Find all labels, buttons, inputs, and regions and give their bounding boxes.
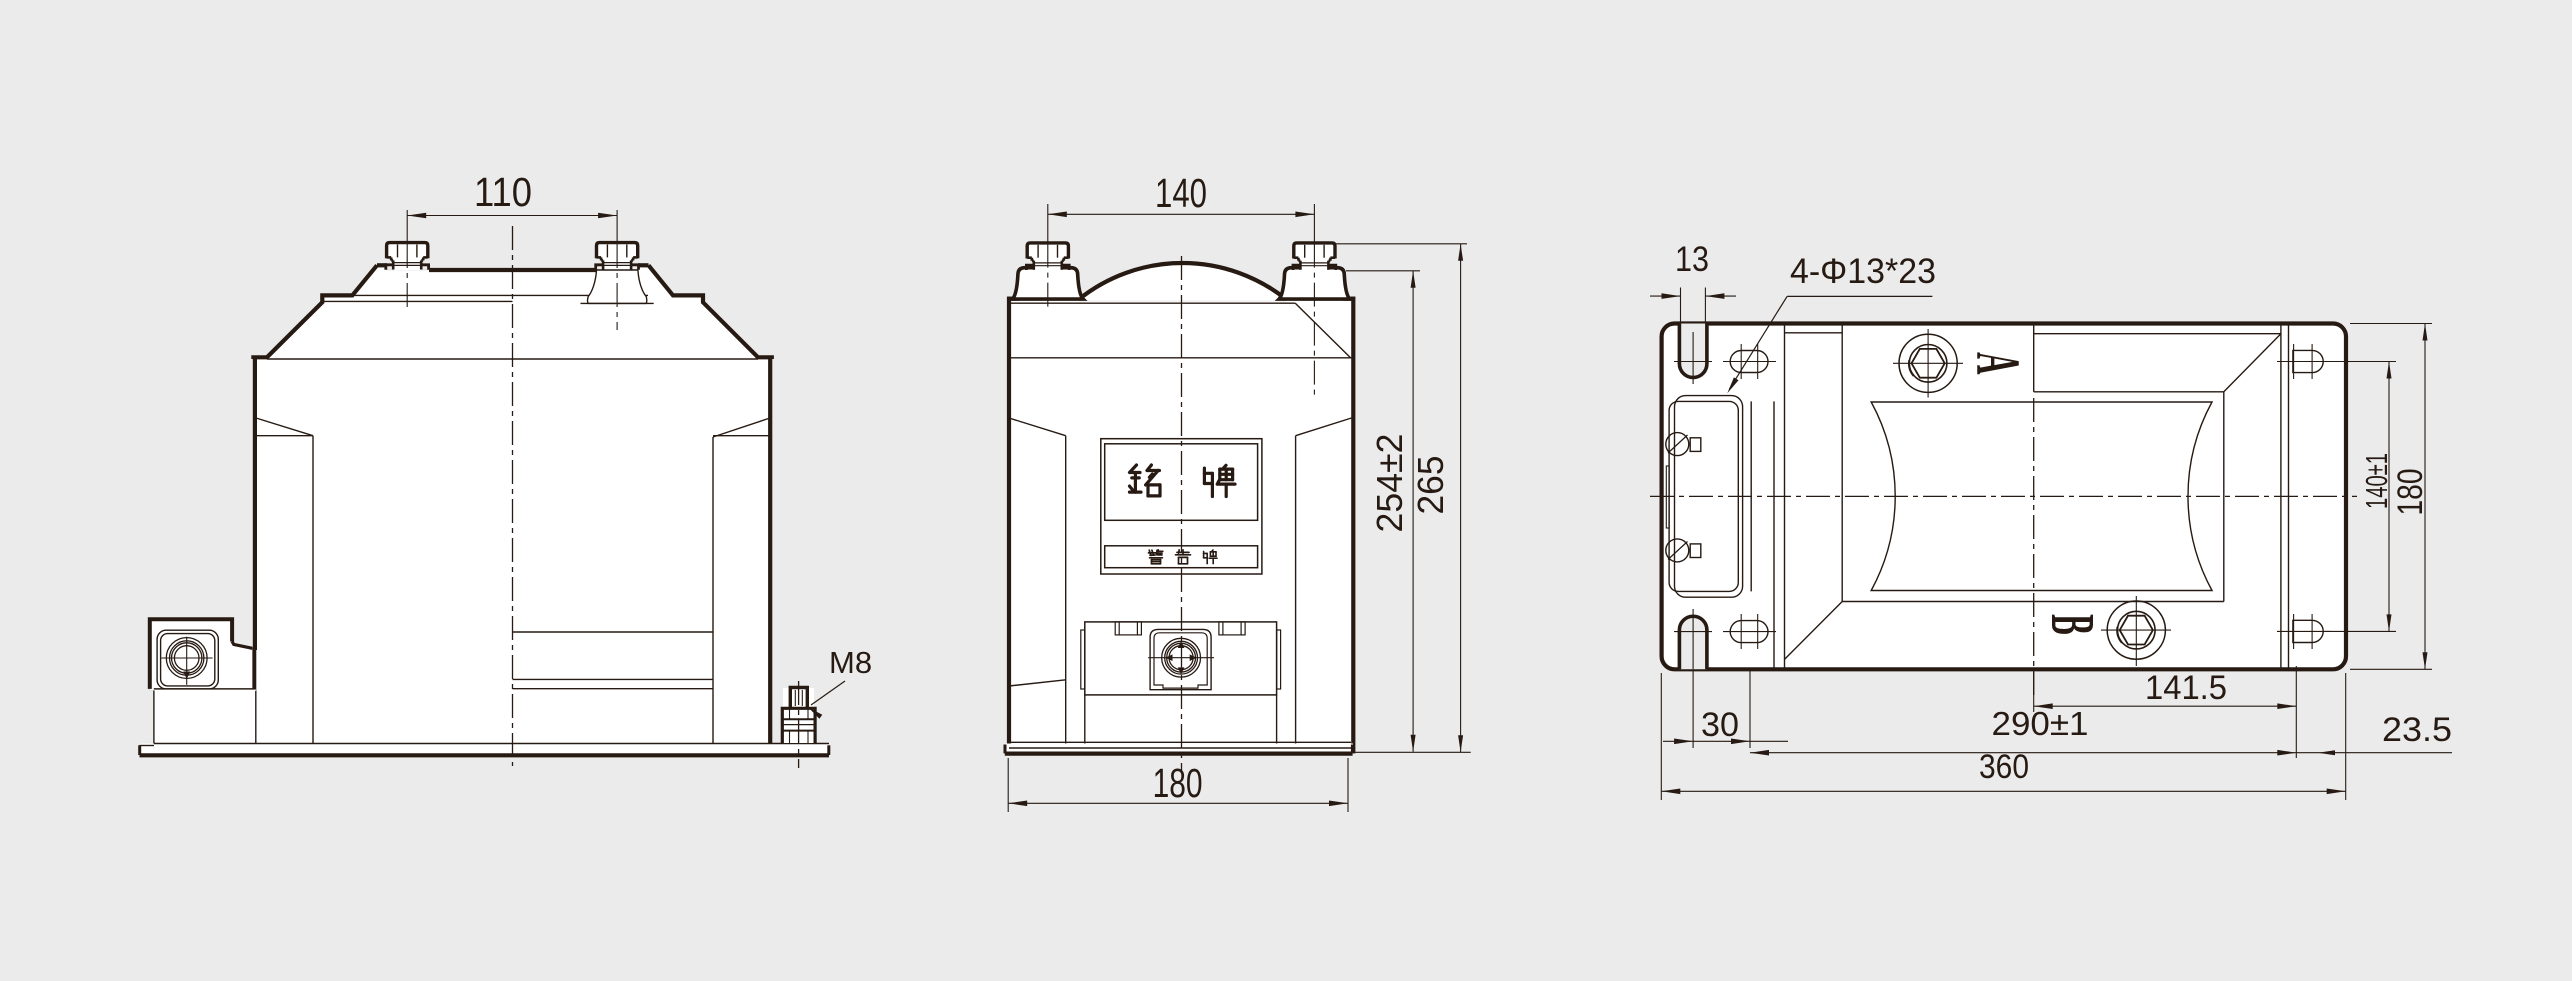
- svg-text:30: 30: [1701, 706, 1739, 744]
- svg-text:A: A: [1964, 352, 2034, 375]
- svg-text:141.5: 141.5: [2145, 669, 2227, 707]
- svg-text:290±1: 290±1: [1992, 705, 2089, 742]
- svg-text:B: B: [2038, 614, 2108, 635]
- svg-text:180: 180: [1153, 760, 1203, 806]
- svg-text:M8: M8: [829, 645, 872, 680]
- svg-text:254±2: 254±2: [1369, 434, 1410, 533]
- svg-text:180: 180: [2391, 469, 2430, 516]
- svg-text:110: 110: [474, 169, 532, 215]
- svg-text:265: 265: [1410, 456, 1451, 515]
- svg-text:23.5: 23.5: [2382, 711, 2452, 749]
- svg-text:4-Φ13*23: 4-Φ13*23: [1790, 252, 1936, 291]
- svg-text:360: 360: [1979, 748, 2029, 786]
- svg-text:140: 140: [1155, 170, 1207, 216]
- svg-text:140±1: 140±1: [2359, 453, 2394, 509]
- svg-text:13: 13: [1675, 240, 1709, 279]
